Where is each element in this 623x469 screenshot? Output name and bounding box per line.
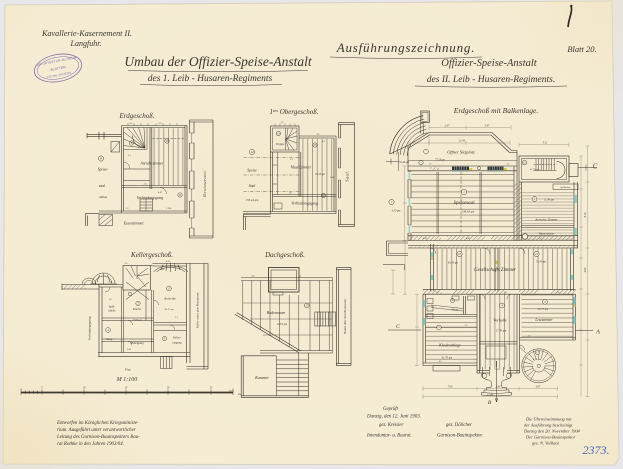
svg-text:Bodenraum: Bodenraum xyxy=(267,310,286,315)
svg-text:Langfuhr.: Langfuhr. xyxy=(70,39,102,48)
svg-text:Anrichte Zimmer: Anrichte Zimmer xyxy=(534,218,558,222)
svg-text:Abort: Abort xyxy=(451,308,459,312)
svg-text:Speisesaal: Speisesaal xyxy=(453,201,475,206)
svg-text:Anrichte: Anrichte xyxy=(163,297,176,301)
svg-text:31.77 qm: 31.77 qm xyxy=(538,308,548,311)
svg-text:C: C xyxy=(396,324,400,330)
svg-text:Kammer: Kammer xyxy=(254,375,269,380)
svg-text:4.60: 4.60 xyxy=(584,267,587,272)
svg-text:Leitung des Garnison-Bauinspek: Leitung des Garnison-Bauinspektors Bau- xyxy=(56,435,140,440)
svg-text:Offner Sitzplatz: Offner Sitzplatz xyxy=(447,150,475,155)
svg-text:8.19: 8.19 xyxy=(584,212,587,217)
svg-text:gez. Döllcher: gez. Döllcher xyxy=(446,423,472,428)
svg-text:3.1: 3.1 xyxy=(175,317,178,319)
svg-text:gez. Kreisler: gez. Kreisler xyxy=(379,423,403,428)
svg-text:2.47: 2.47 xyxy=(445,125,450,128)
svg-text:des 1. Leib - Husaren-Regimen: des 1. Leib - Husaren-Regiments xyxy=(148,74,273,84)
svg-text:13: 13 xyxy=(277,132,281,136)
svg-text:158.63 qm: 158.63 qm xyxy=(462,210,476,214)
svg-text:Vorhalle: Vorhalle xyxy=(493,318,507,323)
svg-text:Musikzimmer: Musikzimmer xyxy=(290,166,312,170)
svg-text:Verbindungsgang.: Verbindungsgang. xyxy=(291,202,319,206)
svg-text:81.50 qm: 81.50 qm xyxy=(448,262,458,265)
svg-text:Speise: Speise xyxy=(247,169,257,173)
svg-text:Die Übereinstimmung mit: Die Übereinstimmung mit xyxy=(525,417,572,422)
svg-text:55,40 qm: 55,40 qm xyxy=(399,161,409,164)
svg-text:eingang: eingang xyxy=(172,342,182,345)
svg-text:Mittelgang: Mittelgang xyxy=(129,341,144,345)
svg-text:34.50 qm: 34.50 qm xyxy=(315,173,325,176)
svg-text:12: 12 xyxy=(523,161,527,165)
svg-text:Erdgeschoß mit Balkenlage.: Erdgeschoß mit Balkenlage. xyxy=(453,106,539,115)
svg-text:Intendantur- u. Baurat.: Intendantur- u. Baurat. xyxy=(366,434,412,439)
svg-text:Lesezimmer: Lesezimmer xyxy=(534,318,553,322)
svg-text:13.60 qm: 13.60 qm xyxy=(132,319,142,322)
svg-text:Gesellschafts Zimmer: Gesellschafts Zimmer xyxy=(474,268,516,273)
svg-text:Anrichtezimmer: Anrichtezimmer xyxy=(140,162,165,166)
svg-text:Boden über dem Restaurant.: Boden über dem Restaurant. xyxy=(343,298,347,334)
svg-text:Kleiderablage: Kleiderablage xyxy=(438,344,461,348)
svg-text:Dachgeschoß.: Dachgeschoß. xyxy=(264,251,305,259)
svg-text:Danzig, den 12. Juni 1903.: Danzig, den 12. Juni 1903. xyxy=(366,415,421,420)
svg-text:Speise-: Speise- xyxy=(98,168,109,172)
svg-text:126.9 qm: 126.9 qm xyxy=(277,323,287,326)
svg-text:des II. Leib - Husaren-Regi: des II. Leib - Husaren-Regiments. xyxy=(427,75,555,85)
svg-text:5.47: 5.47 xyxy=(485,125,490,128)
svg-text:16: 16 xyxy=(322,194,326,198)
svg-text:rat Rothke in den Jahren 1903/: rat Rothke in den Jahren 1903/04. xyxy=(57,442,124,447)
svg-text:4.81: 4.81 xyxy=(466,237,470,240)
svg-text:3.1: 3.1 xyxy=(299,276,302,278)
svg-text:Küche: Küche xyxy=(132,307,142,311)
svg-text:17: 17 xyxy=(305,304,309,308)
svg-text:Kavallerie-Kasernement II.: Kavallerie-Kasernement II. xyxy=(41,29,132,38)
svg-text:153.44 qm: 153.44 qm xyxy=(246,198,260,202)
svg-text:26.17 qm: 26.17 qm xyxy=(164,308,174,311)
svg-text:Keller-: Keller- xyxy=(172,337,181,340)
svg-text:11.94: 11.94 xyxy=(459,140,465,143)
svg-text:Altbau: Altbau xyxy=(98,195,108,199)
svg-text:7.04: 7.04 xyxy=(448,386,453,389)
svg-text:2.84: 2.84 xyxy=(496,386,501,389)
svg-text:Keller unter dem Restaurant.: Keller unter dem Restaurant. xyxy=(196,292,200,329)
svg-text:17.70 qm: 17.70 qm xyxy=(496,330,506,333)
svg-text:2373.: 2373. xyxy=(583,443,610,457)
svg-text:17: 17 xyxy=(536,351,540,355)
svg-text:Garnison-Bauinspektor.: Garnison-Bauinspektor. xyxy=(437,434,483,439)
svg-text:Essenzimmer.: Essenzimmer. xyxy=(123,222,145,226)
svg-text:M 1:100: M 1:100 xyxy=(116,377,138,383)
svg-text:Gang: Gang xyxy=(106,337,113,341)
svg-text:Spülbecken: Spülbecken xyxy=(560,187,571,189)
svg-text:Umbau der Offizier-Speise-Anst: Umbau der Offizier-Speise-Anstalt xyxy=(124,54,312,69)
svg-text:51.30 qm: 51.30 qm xyxy=(536,261,546,264)
svg-text:4.81: 4.81 xyxy=(423,237,427,240)
svg-text:Saal.: Saal. xyxy=(345,170,350,181)
svg-text:Saal: Saal xyxy=(249,184,256,188)
svg-text:Offizier-Speise-Anstalt: Offizier-Speise-Anstalt xyxy=(441,58,538,69)
svg-text:10: 10 xyxy=(166,139,170,143)
svg-text:Restaurant.: Restaurant. xyxy=(202,169,207,198)
svg-text:Geprüft: Geprüft xyxy=(383,407,399,412)
svg-text:der Ausführung bescheinigt: der Ausführung bescheinigt xyxy=(524,423,573,428)
svg-text:küche: küche xyxy=(109,309,117,313)
svg-text:14: 14 xyxy=(251,150,255,154)
svg-text:Ausführungszeichnung.: Ausführungszeichnung. xyxy=(336,40,476,55)
svg-text:Wartezimmer: Wartezimmer xyxy=(539,232,556,236)
svg-text:Entworfen im Königlichen Krieg: Entworfen im Königlichen Kriegsministe- xyxy=(56,421,139,426)
svg-text:Danzig den 20. November 1904: Danzig den 20. November 1904 xyxy=(523,429,581,434)
svg-text:4.97 qm: 4.97 qm xyxy=(533,358,541,361)
svg-text:Flur.: Flur. xyxy=(124,368,132,372)
svg-text:rium. Ausgeführt unter verant: rium. Ausgeführt unter verantwortlicher xyxy=(57,428,136,433)
svg-text:17.04: 17.04 xyxy=(487,394,494,397)
svg-text:Der Garnison-Bauinspektor: Der Garnison-Bauinspektor xyxy=(525,435,576,440)
svg-text:41,79 qm: 41,79 qm xyxy=(530,168,540,171)
svg-text:Verbindungsgang: Verbindungsgang xyxy=(137,196,164,200)
svg-text:Blatt 20.: Blatt 20. xyxy=(567,44,596,54)
svg-text:Kellergeschoß.: Kellergeschoß. xyxy=(130,251,173,259)
svg-text:10: 10 xyxy=(458,252,462,256)
svg-text:Erdgeschoß.: Erdgeschoß. xyxy=(119,112,155,120)
svg-text:Treppe: Treppe xyxy=(276,142,285,146)
svg-text:41.70 qm: 41.70 qm xyxy=(442,357,452,360)
svg-text:A: A xyxy=(595,329,600,336)
svg-text:C: C xyxy=(593,163,598,171)
svg-text:Verbindungsgang.: Verbindungsgang. xyxy=(88,316,92,341)
svg-text:5.11: 5.11 xyxy=(543,142,548,145)
svg-text:4.97: 4.97 xyxy=(536,386,541,389)
svg-text:11.30 qm: 11.30 qm xyxy=(544,199,554,202)
svg-text:4,50 qm: 4,50 qm xyxy=(392,210,401,213)
svg-text:77.20 qm: 77.20 qm xyxy=(435,159,445,162)
svg-text:15: 15 xyxy=(314,143,318,147)
svg-text:gez. N. Vaillant: gez. N. Vaillant xyxy=(532,441,560,446)
svg-text:saal: saal xyxy=(99,184,105,188)
